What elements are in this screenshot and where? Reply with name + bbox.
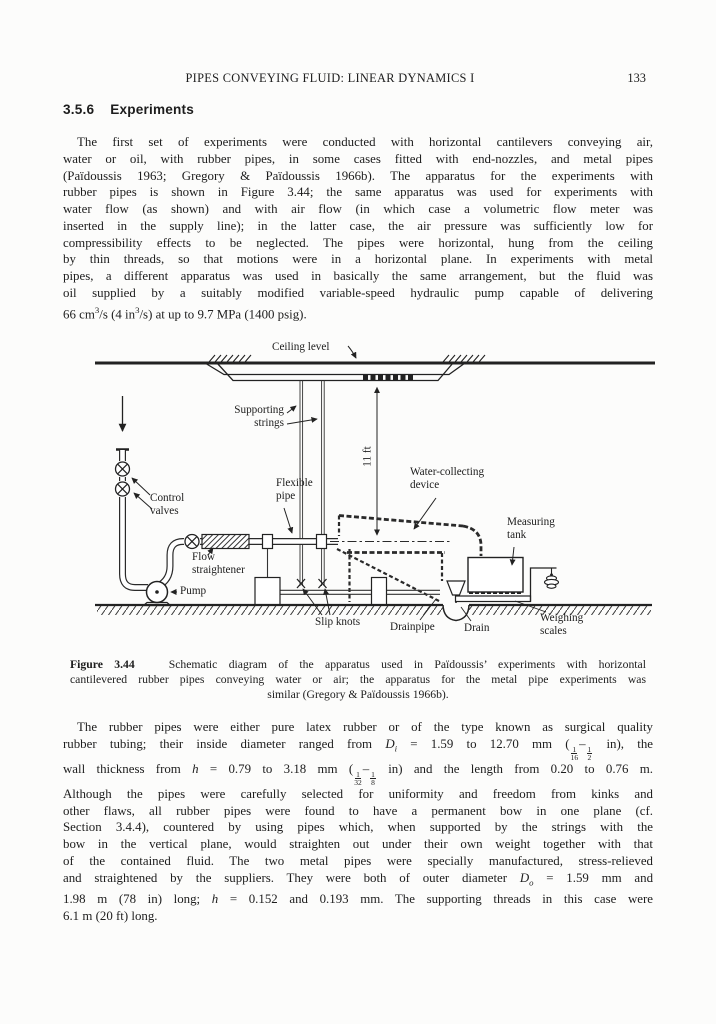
text-line: bow in the vertical plane, would straigh…	[63, 836, 653, 853]
ceiling	[95, 355, 655, 381]
caption-line: cantilevered rubber pipes conveying wate…	[70, 672, 646, 687]
section-number: 3.5.6	[63, 102, 94, 117]
text-line: 6.1 m (20 ft) long.	[63, 908, 653, 925]
text-line: wall thickness from h = 0.79 to 3.18 mm …	[63, 761, 653, 786]
text-line: other flaws, all rubber pipes were found…	[63, 803, 653, 820]
label-supporting-strings: Supporting strings	[224, 404, 284, 430]
test-line	[158, 533, 338, 586]
text-line: 66 cm3/s (4 in3/s) at up to 9.7 MPa (140…	[63, 302, 653, 323]
water-collecting-device	[330, 516, 481, 603]
label-flow-straightener: Flow straightener	[192, 551, 245, 577]
label-flexible-pipe: Flexible pipe	[276, 477, 313, 503]
book-page: PIPES CONVEYING FLUID: LINEAR DYNAMICS I…	[0, 0, 716, 1024]
label-drain: Drain	[464, 622, 489, 635]
label-control-valves: Control valves	[150, 492, 184, 518]
running-head: PIPES CONVEYING FLUID: LINEAR DYNAMICS I…	[63, 71, 653, 87]
label-drainpipe: Drainpipe	[390, 621, 435, 634]
measuring-tank-assembly	[456, 558, 559, 602]
text-line: rubber tubing; their inside diameter ran…	[63, 736, 653, 761]
pump-symbol	[144, 582, 171, 606]
label-weighing-scales: Weighing scales	[540, 612, 583, 638]
paragraph-2: The rubber pipes were either pure latex …	[63, 719, 653, 924]
paragraph-1: The first set of experiments were conduc…	[63, 134, 653, 323]
caption-line: similar (Gregory & Païdoussis 1966b).	[70, 687, 646, 702]
text-line: Section 3.4.4), countered by using pipes…	[63, 819, 653, 836]
label-slip-knots: Slip knots	[315, 616, 360, 629]
page-number: 133	[627, 71, 646, 86]
support-rig	[255, 578, 440, 606]
text-line: The rubber pipes were either pure latex …	[63, 719, 653, 736]
chapter-title: PIPES CONVEYING FLUID: LINEAR DYNAMICS I	[35, 71, 625, 86]
label-measuring-tank: Measuring tank	[507, 516, 555, 542]
text-line: pipes, a different apparatus was used in…	[63, 268, 653, 285]
label-ceiling-level: Ceiling level	[272, 341, 329, 354]
figure-caption: Figure 3.44 Schematic diagram of the app…	[70, 657, 646, 703]
slip-knots-marks	[297, 579, 327, 588]
text-line: (Païdoussis 1963; Gregory & Païdoussis 1…	[63, 168, 653, 185]
text-line: of the contained fluid. The two metal pi…	[63, 853, 653, 870]
label-water-collecting-device: Water-collecting device	[410, 466, 484, 492]
text-line: 1.98 m (78 in) long; h = 0.152 and 0.193…	[63, 891, 653, 908]
label-pump: Pump	[180, 585, 206, 598]
text-line: by thin threads, so that motions were in…	[63, 251, 653, 268]
text-line: water or oil, with rubber pipes, in some…	[63, 151, 653, 168]
text-line: and straightened by the suppliers. They …	[63, 870, 653, 891]
caption-line: Figure 3.44 Schematic diagram of the app…	[70, 657, 646, 672]
text-line: rubber pipes is shown in Figure 3.44; th…	[63, 184, 653, 201]
section-title: Experiments	[110, 102, 194, 117]
label-dimension-11ft: 11 ft	[362, 439, 375, 475]
section-heading: 3.5.6Experiments	[63, 102, 194, 117]
text-line: inserted in the supply line); in the lat…	[63, 218, 653, 235]
supply-line	[114, 396, 148, 588]
drain	[443, 581, 469, 621]
text-line: Although the pipes were carefully select…	[63, 786, 653, 803]
text-line: oil supplied by a suitably modified vari…	[63, 285, 653, 302]
text-line: The first set of experiments were conduc…	[63, 134, 653, 151]
text-line: compressibility effects to be neglected.…	[63, 235, 653, 252]
text-line: water flow (as shown) and with air flow …	[63, 201, 653, 218]
